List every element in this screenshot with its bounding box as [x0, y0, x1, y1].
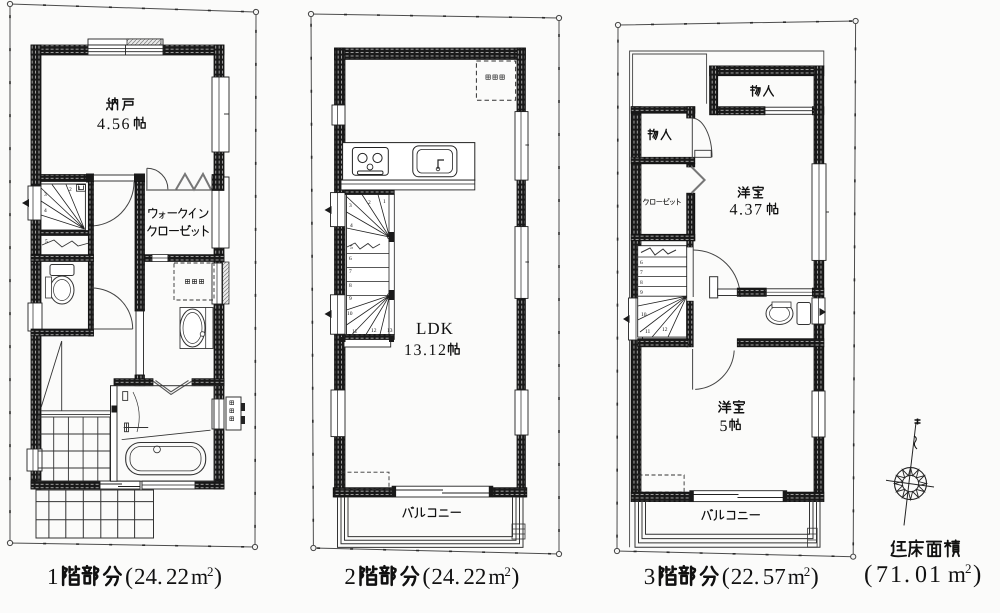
- svg-text:m: m: [191, 564, 208, 589]
- svg-text:2: 2: [368, 200, 371, 206]
- svg-text:9: 9: [349, 296, 352, 302]
- svg-text:LDK: LDK: [416, 319, 454, 338]
- svg-text:22: 22: [463, 564, 486, 589]
- svg-text:9: 9: [640, 290, 643, 296]
- svg-text:2: 2: [69, 187, 72, 193]
- svg-text:11: 11: [352, 329, 358, 335]
- svg-text:3: 3: [44, 192, 47, 198]
- svg-text:2: 2: [207, 564, 214, 579]
- svg-text:m: m: [788, 564, 805, 589]
- svg-text:1: 1: [78, 186, 81, 192]
- svg-text:(: (: [722, 564, 730, 590]
- svg-text:5: 5: [720, 418, 728, 435]
- svg-text:1: 1: [383, 199, 386, 205]
- svg-text:24.: 24.: [134, 564, 163, 589]
- svg-text:57: 57: [763, 564, 786, 589]
- svg-text:3: 3: [349, 203, 352, 209]
- svg-text:5: 5: [350, 245, 353, 251]
- svg-text:2: 2: [804, 564, 811, 579]
- svg-text:12: 12: [371, 328, 377, 334]
- svg-text:12: 12: [662, 327, 668, 333]
- svg-text:): ): [811, 564, 819, 590]
- svg-text:8: 8: [640, 280, 643, 286]
- svg-text:): ): [973, 561, 981, 588]
- svg-text:3: 3: [644, 564, 656, 589]
- svg-text:1: 1: [47, 564, 59, 589]
- svg-text:7: 7: [640, 270, 643, 276]
- svg-text:5: 5: [45, 239, 48, 245]
- svg-text:8: 8: [349, 283, 352, 289]
- svg-text:71.: 71.: [876, 562, 912, 588]
- svg-text:4.37: 4.37: [730, 202, 764, 219]
- svg-text:6: 6: [349, 256, 352, 262]
- svg-text:): ): [214, 564, 222, 590]
- svg-text:10: 10: [347, 311, 353, 317]
- svg-text:(: (: [125, 564, 133, 590]
- svg-text:4: 4: [44, 208, 47, 214]
- svg-text:4: 4: [350, 223, 353, 229]
- svg-text:7: 7: [349, 269, 352, 275]
- svg-text:m: m: [488, 564, 505, 589]
- svg-text:11: 11: [645, 329, 651, 335]
- svg-text:13: 13: [387, 328, 393, 334]
- svg-text:4.56: 4.56: [97, 116, 131, 133]
- svg-text:10: 10: [641, 312, 647, 318]
- svg-text:22: 22: [166, 564, 189, 589]
- svg-text:2: 2: [504, 564, 511, 579]
- svg-text:): ): [511, 564, 519, 590]
- svg-text:2: 2: [344, 564, 356, 589]
- svg-text:6: 6: [640, 260, 643, 266]
- svg-text:13.12: 13.12: [404, 342, 448, 359]
- svg-text:01: 01: [915, 562, 943, 588]
- svg-text:(: (: [422, 564, 430, 590]
- svg-text:22.: 22.: [731, 564, 760, 589]
- svg-text:(: (: [864, 561, 872, 588]
- svg-text:2: 2: [965, 561, 972, 576]
- svg-text:m: m: [948, 562, 966, 587]
- svg-text:24.: 24.: [431, 564, 460, 589]
